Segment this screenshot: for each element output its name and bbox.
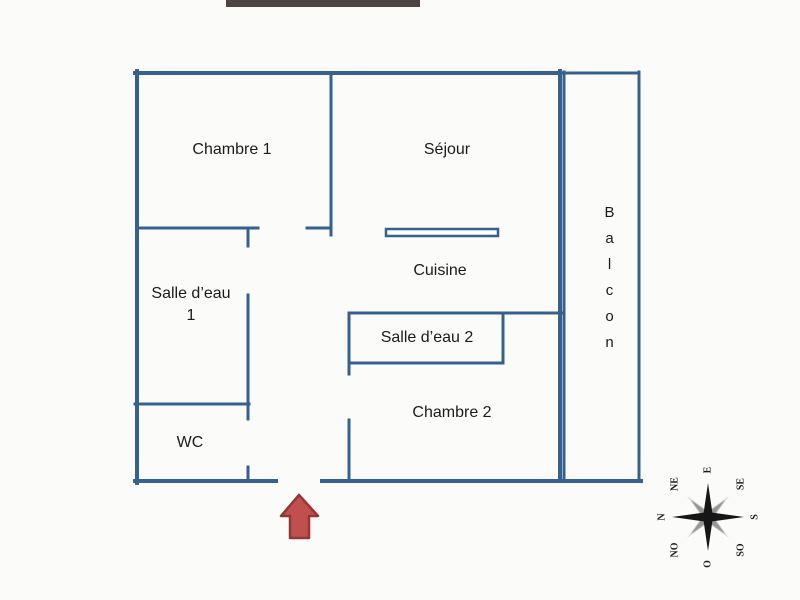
- room-label-salle-eau-2: Salle d’eau 2: [351, 327, 503, 349]
- room-label-sejour: Séjour: [387, 139, 507, 161]
- compass-main-star-ew: [703, 483, 713, 551]
- room-label-salle-eau-1: Salle d’eau 1: [151, 283, 231, 327]
- floor-plan-page: N NE E SE S SO O NO Chambre 1 Séjour Cui…: [0, 0, 800, 600]
- room-label-balcon: Balcon: [594, 204, 618, 364]
- kitchen-counter-symbol: [386, 229, 498, 236]
- compass-label-s: S: [750, 514, 761, 520]
- compass-label-n: N: [657, 513, 668, 521]
- compass-label-ne: NE: [670, 477, 681, 491]
- floor-plan-canvas: N NE E SE S SO O NO: [0, 0, 800, 600]
- room-label-wc: WC: [150, 432, 230, 454]
- room-label-cuisine: Cuisine: [380, 260, 500, 282]
- compass-label-o: O: [703, 560, 714, 568]
- compass-label-se: SE: [736, 478, 747, 491]
- room-label-chambre2: Chambre 2: [372, 402, 532, 424]
- compass-rose: N NE E SE S SO O NO: [657, 466, 761, 568]
- compass-label-no: NO: [670, 542, 681, 557]
- compass-label-e: E: [703, 466, 714, 473]
- compass-label-so: SO: [736, 543, 747, 557]
- room-label-chambre1: Chambre 1: [152, 139, 312, 161]
